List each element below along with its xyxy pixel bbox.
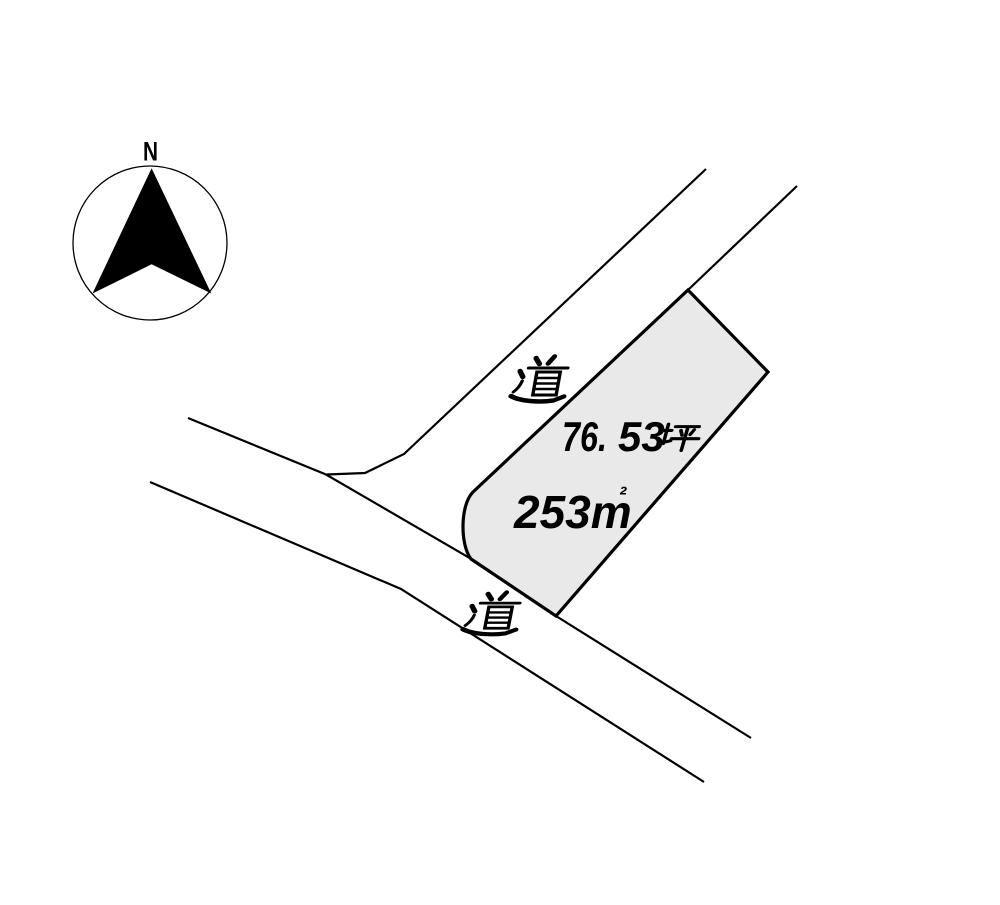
- svg-text:76.: 76.: [562, 413, 607, 460]
- svg-text:N: N: [143, 137, 158, 167]
- svg-text:53: 53: [618, 413, 665, 460]
- svg-text:253m: 253m: [513, 486, 632, 538]
- svg-text:²: ²: [619, 482, 627, 507]
